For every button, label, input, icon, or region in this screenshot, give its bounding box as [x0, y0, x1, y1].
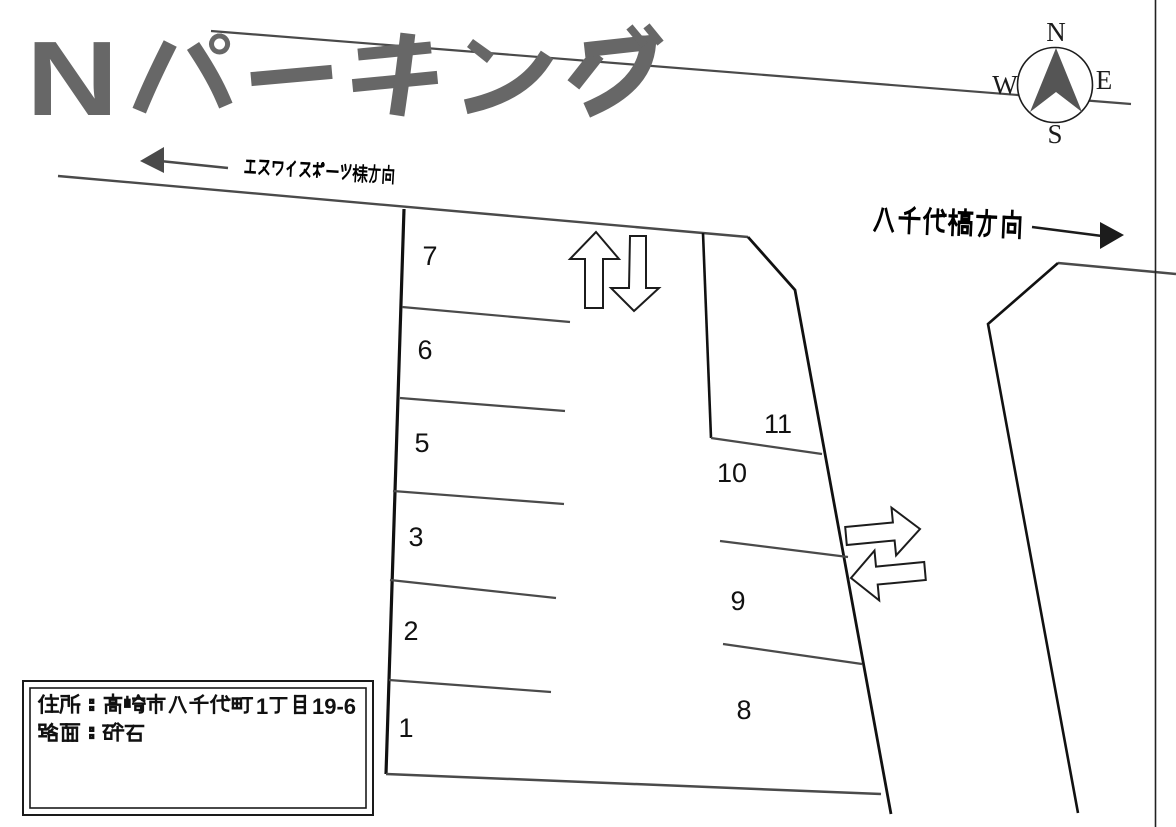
svg-text:6: 6 — [417, 335, 432, 365]
svg-text:9: 9 — [730, 586, 745, 616]
svg-text:N: N — [26, 19, 119, 138]
svg-text:W: W — [992, 70, 1018, 100]
svg-text:2: 2 — [403, 616, 418, 646]
svg-text:1: 1 — [256, 694, 268, 719]
svg-text:3: 3 — [408, 522, 423, 552]
svg-text:E: E — [1096, 65, 1113, 95]
svg-text:8: 8 — [736, 695, 751, 725]
svg-text:5: 5 — [414, 428, 429, 458]
svg-text:11: 11 — [764, 409, 792, 439]
svg-text:N: N — [1046, 17, 1066, 47]
svg-text:19-6: 19-6 — [312, 694, 356, 719]
svg-text:7: 7 — [422, 241, 437, 271]
svg-text:1: 1 — [398, 713, 413, 743]
svg-text:10: 10 — [717, 458, 747, 488]
svg-text:S: S — [1047, 119, 1062, 149]
